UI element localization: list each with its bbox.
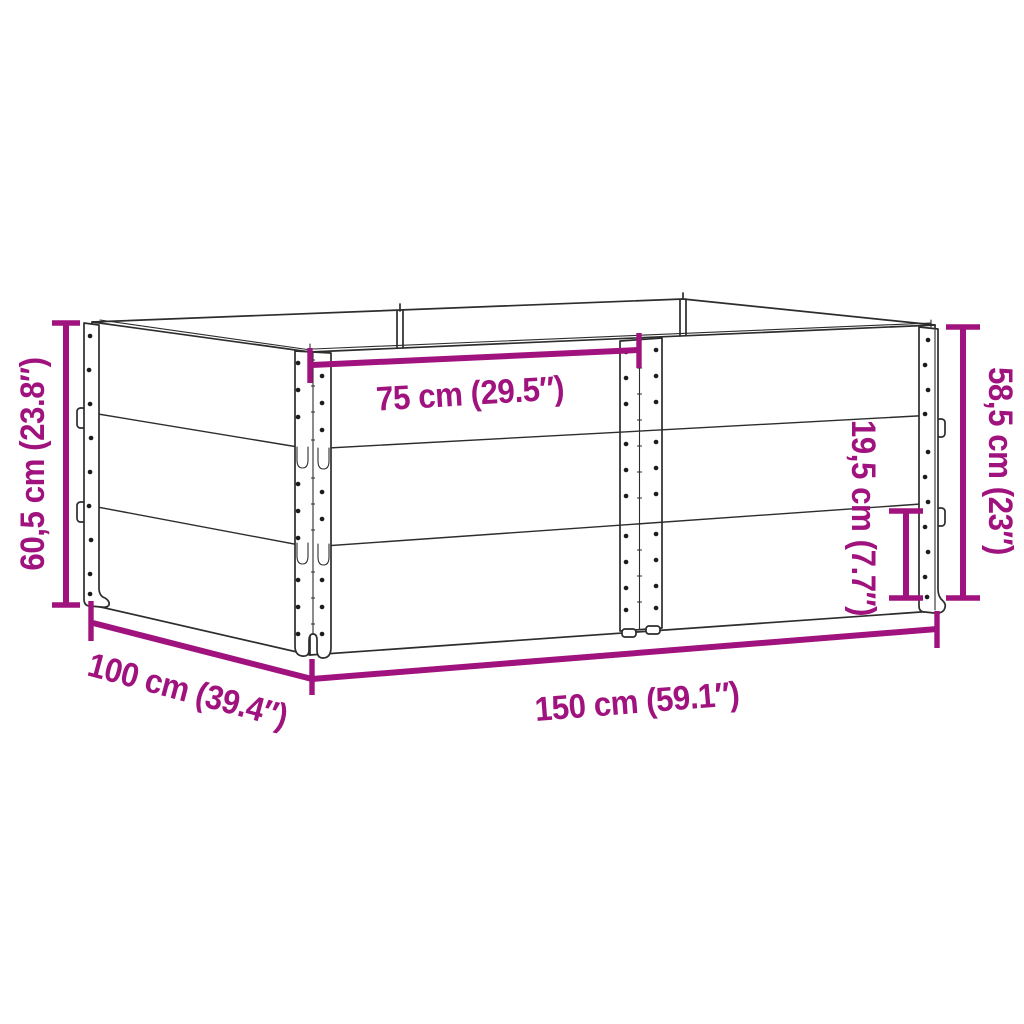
- front-face: [310, 325, 935, 655]
- hinge-strip-front-left-corner: [295, 344, 331, 658]
- hinge-strip-front-right-corner: [919, 320, 945, 613]
- left-face: [92, 322, 310, 655]
- hinge-strip-foot: [646, 626, 660, 634]
- dimension-label-stack-height: 58,5 cm (23″): [982, 367, 1021, 555]
- dimension-total-height: 60,5 cm (23.8″): [13, 323, 80, 605]
- dimension-label-width: 150 cm (59.1″): [533, 674, 740, 728]
- hinge-strip-body: [919, 327, 945, 613]
- dimension-label-depth: 100 cm (39.4″): [84, 645, 292, 735]
- top-rim-back-edge: [92, 299, 935, 325]
- dimension-label-total-height: 60,5 cm (23.8″): [13, 357, 52, 570]
- planter-dimension-diagram: 60,5 cm (23.8″) 75 cm (29.5″) 19,5 cm (7…: [0, 0, 1024, 1024]
- hinge-strip-foot: [622, 629, 636, 637]
- structure-drawing: [77, 293, 945, 658]
- dimension-stack-height: 58,5 cm (23″): [946, 327, 1020, 598]
- dimension-label-collar-height: 19,5 cm (7.7″): [845, 420, 884, 616]
- diagram-canvas: 60,5 cm (23.8″) 75 cm (29.5″) 19,5 cm (7…: [0, 0, 1024, 1024]
